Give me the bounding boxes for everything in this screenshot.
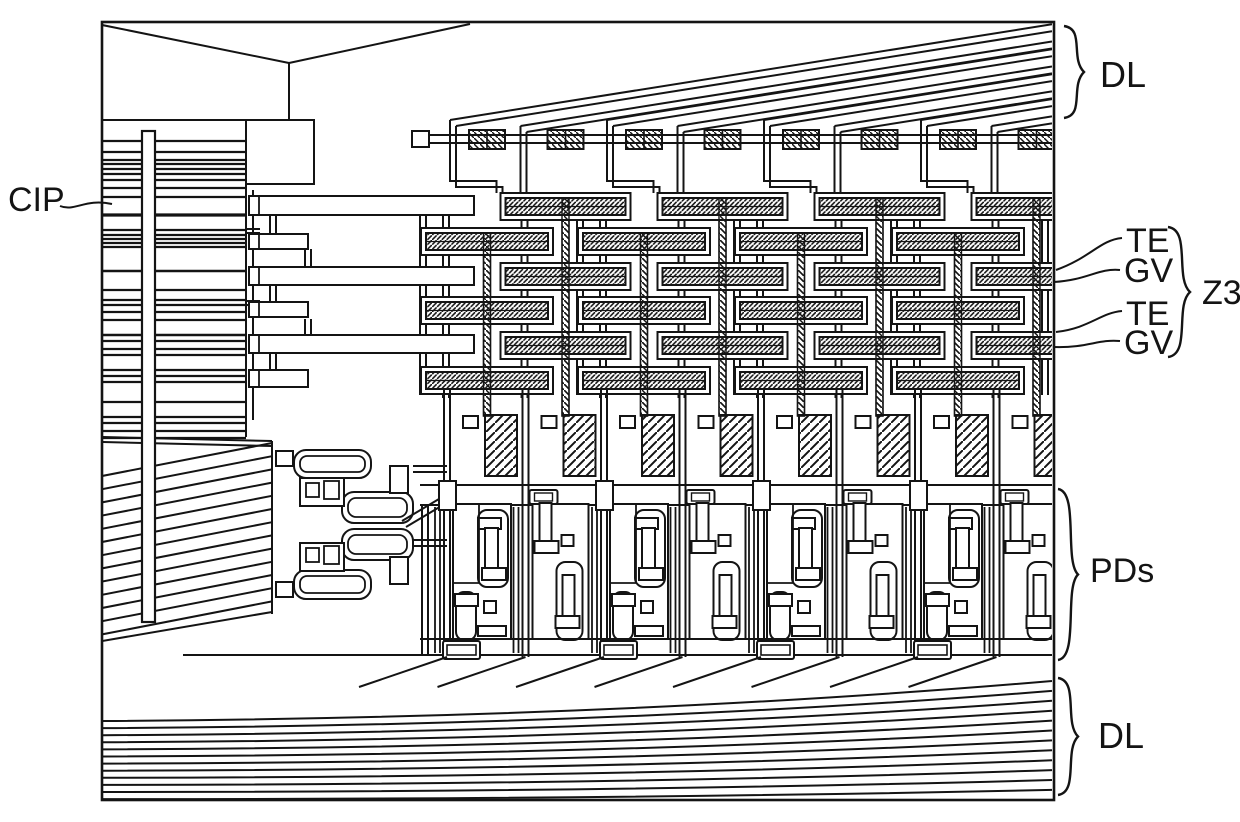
svg-text:DL: DL [1098,715,1144,756]
svg-text:Z3: Z3 [1202,274,1240,312]
svg-text:CIP: CIP [8,181,65,219]
svg-text:DL: DL [1100,54,1146,95]
svg-text:PDs: PDs [1090,552,1154,590]
svg-text:GV: GV [1124,252,1173,290]
svg-text:GV: GV [1124,324,1173,362]
